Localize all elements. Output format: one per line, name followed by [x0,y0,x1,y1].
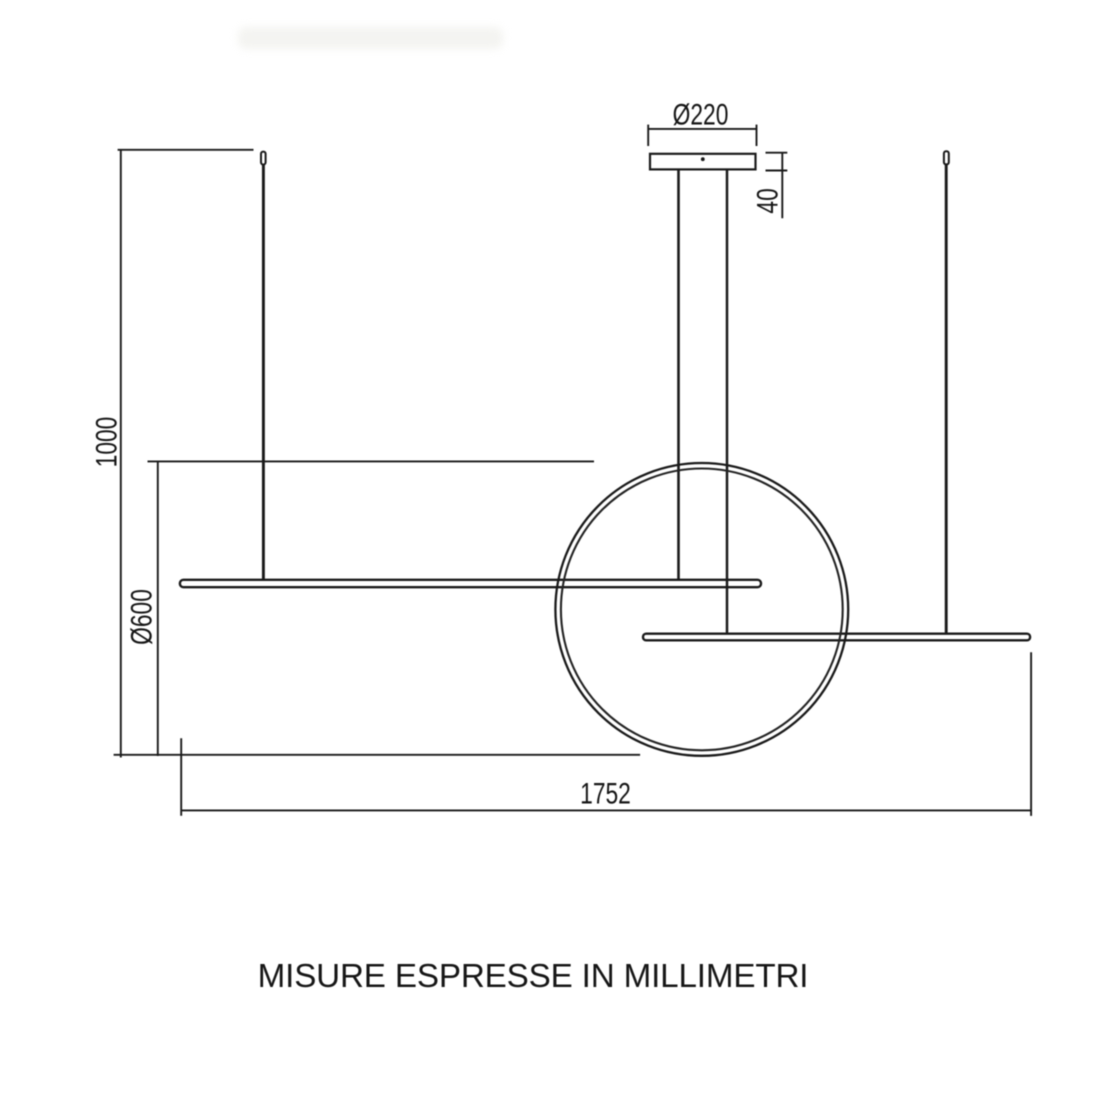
svg-text:1000: 1000 [90,417,124,468]
svg-text:Ø600: Ø600 [124,589,158,645]
svg-text:MISURE ESPRESSE IN MILLIMETRI: MISURE ESPRESSE IN MILLIMETRI [258,958,809,995]
svg-text:Ø220: Ø220 [673,97,729,131]
svg-text:1752: 1752 [580,777,631,811]
svg-text:40: 40 [750,188,784,213]
